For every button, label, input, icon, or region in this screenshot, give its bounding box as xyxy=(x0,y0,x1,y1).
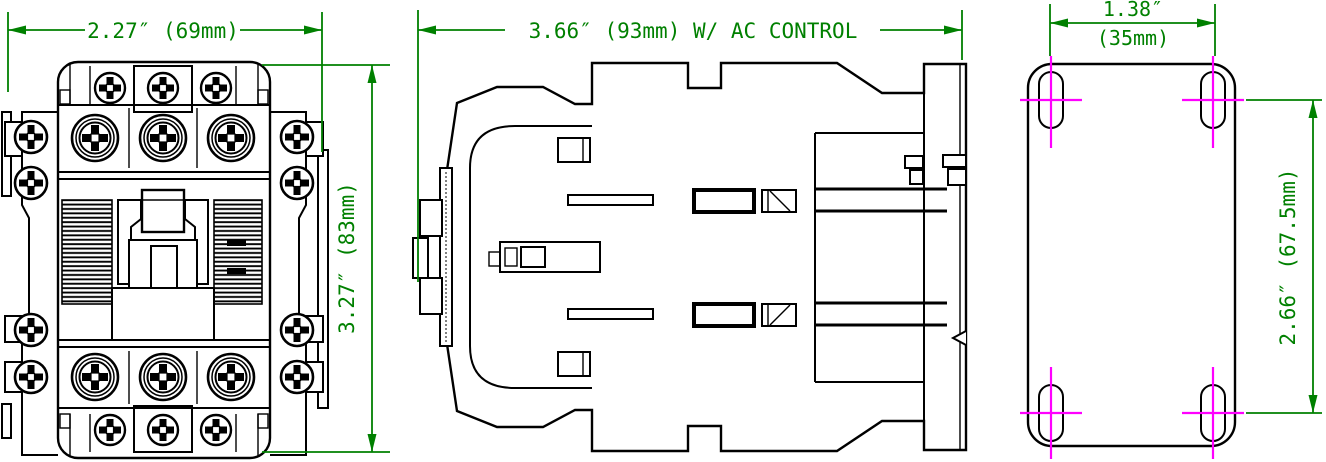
arc-chute-ribs-left xyxy=(62,200,112,304)
din-clip-detail xyxy=(943,155,966,167)
aux-terminal-screw-icon xyxy=(281,361,313,393)
front-left-tab-strip xyxy=(2,112,58,455)
dimension-label-side-width: 3.66″ (93mm) W/ AC CONTROL xyxy=(529,19,858,43)
power-terminal-screw-icon xyxy=(140,354,186,400)
arrowhead-down-icon xyxy=(368,434,377,452)
aux-terminal-screw-icon xyxy=(15,361,47,393)
power-terminal-screw-icon xyxy=(72,354,118,400)
dimension-label-front-height: 3.27″ (83mm) xyxy=(335,182,359,334)
coil-terminal-screw-icon xyxy=(95,73,125,103)
armature-button xyxy=(142,190,184,232)
arrowhead-up-icon xyxy=(1309,100,1318,118)
arrowhead-right-icon xyxy=(944,26,962,35)
dimension-label-mount-height: 2.66″ (67.5mm) xyxy=(1276,168,1300,345)
aux-terminal-screw-icon xyxy=(281,121,313,153)
arrowhead-down-icon xyxy=(1309,395,1318,413)
arrowhead-left-icon xyxy=(418,26,436,35)
mounting-hole-view xyxy=(1020,56,1244,459)
aux-terminal-screw-icon xyxy=(15,167,47,199)
aux-terminal-screw-icon xyxy=(15,121,47,153)
arrowhead-left-icon xyxy=(8,26,26,35)
din-clip-detail xyxy=(948,169,966,185)
front-view xyxy=(2,62,328,458)
coil-terminal-screw-icon xyxy=(201,73,231,103)
power-terminal-screw-icon xyxy=(140,115,186,161)
coil-terminal-screw-icon xyxy=(95,415,125,445)
arrowhead-left-icon xyxy=(1050,19,1068,28)
arrowhead-right-icon xyxy=(1197,19,1215,28)
aux-terminal-screw-icon xyxy=(281,167,313,199)
dimension-label-mount-width-mm: (35mm) xyxy=(1097,26,1169,50)
din-clip-detail xyxy=(910,170,923,184)
arrowhead-up-icon xyxy=(368,65,377,83)
drawing-canvas: 2.27″ (69mm) 3.27″ (83mm) 3.66″ (93mm) W… xyxy=(0,0,1326,462)
aux-terminal-screw-icon xyxy=(15,314,47,346)
coil-terminal-screw-icon xyxy=(201,415,231,445)
din-clip-detail xyxy=(905,156,923,168)
front-bottom-power-terminals xyxy=(58,351,270,408)
power-terminal-screw-icon xyxy=(72,115,118,161)
dimension-mount-width: 1.38″ (35mm) xyxy=(1050,0,1215,56)
front-right-tab-strip xyxy=(270,112,328,455)
dimension-mount-height: 2.66″ (67.5mm) xyxy=(1246,100,1322,413)
coil-terminal-screw-icon xyxy=(148,73,178,103)
contactor-dimension-drawing: 2.27″ (69mm) 3.27″ (83mm) 3.66″ (93mm) W… xyxy=(0,0,1326,462)
dimension-label-front-width: 2.27″ (69mm) xyxy=(87,19,239,43)
side-view xyxy=(413,63,966,451)
side-body-outline xyxy=(447,63,966,451)
aux-terminal-screw-icon xyxy=(281,314,313,346)
arrowhead-right-icon xyxy=(304,26,322,35)
dimension-label-mount-width-in: 1.38″ xyxy=(1103,0,1163,21)
power-terminal-screw-icon xyxy=(208,115,254,161)
power-terminal-screw-icon xyxy=(208,354,254,400)
coil-terminal-screw-icon xyxy=(148,415,178,445)
arc-chute-ribs-right xyxy=(214,200,262,304)
